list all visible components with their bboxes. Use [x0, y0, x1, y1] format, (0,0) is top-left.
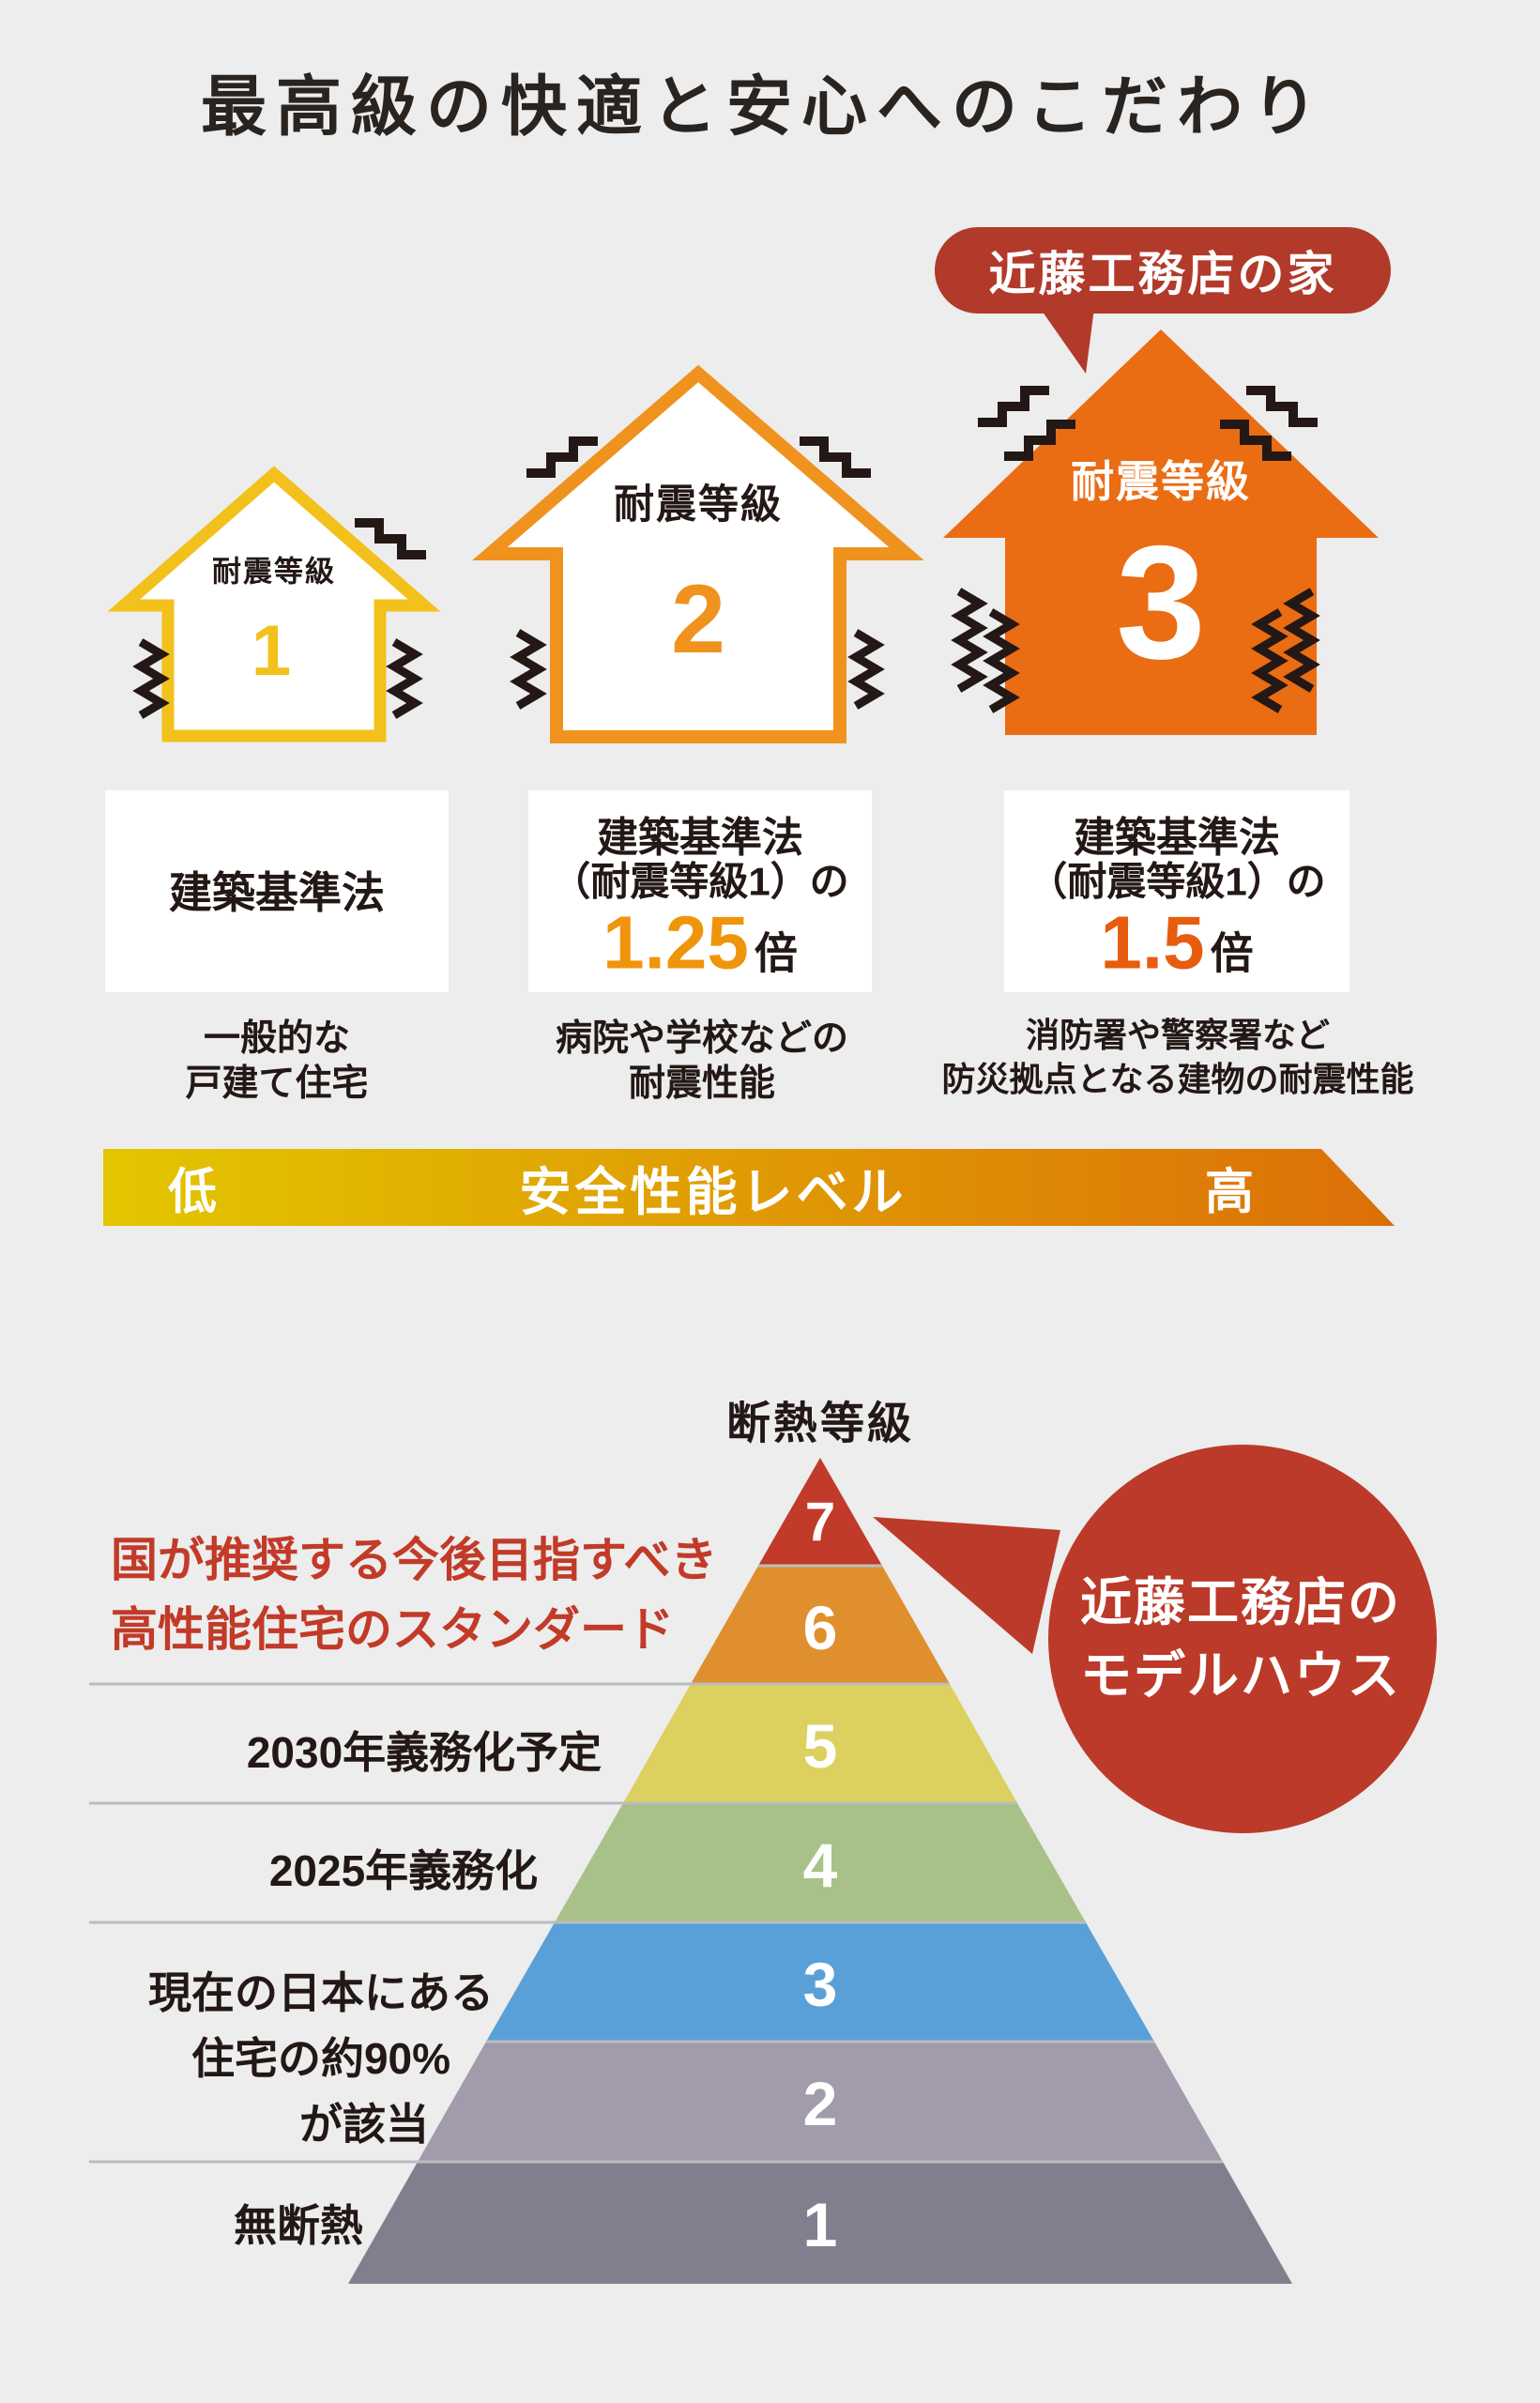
house-3-grade-title: 耐震等級: [1071, 448, 1251, 510]
shake-zigzag-icon: [856, 633, 877, 706]
spec-grade1-title: 建築基準法: [169, 859, 385, 921]
company-house-badge: 近藤工務店の家: [935, 227, 1391, 314]
house-3-grade-number: 3: [1116, 522, 1206, 683]
national-standard-note: 高性能住宅のスタンダード: [111, 1592, 674, 1660]
shake-stairs-icon: [978, 390, 1049, 422]
tier-number-7: 7: [805, 1495, 835, 1550]
shake-zigzag-icon: [141, 642, 161, 715]
spec-grade2-multiplier-unit: 倍: [755, 920, 798, 982]
house-3-caption: 消防署や警察署など: [1026, 1008, 1330, 1057]
house-3-caption: 防災拠点となる建物の耐震性能: [942, 1052, 1414, 1101]
model-house-callout: 近藤工務店の: [1080, 1560, 1401, 1635]
tier-number-6: 6: [803, 1597, 838, 1659]
insulation-title: 断熱等級: [726, 1387, 914, 1452]
badge-tail: [1040, 308, 1094, 374]
tier-number-1: 1: [803, 2194, 838, 2256]
shake-zigzag-icon: [959, 591, 980, 689]
spec-grade2-multiplier-row: 1.25 倍: [602, 906, 798, 982]
house-2-grade-title: 耐震等級: [614, 472, 783, 530]
spec-grade3-multiplier: 1.5: [1100, 906, 1204, 981]
house-1-grade-number: 1: [252, 616, 291, 687]
house-2-grade-number: 2: [671, 571, 725, 668]
house-1-shape: [124, 474, 424, 736]
spec-grade3-multiplier-unit: 倍: [1211, 920, 1254, 982]
shake-stairs-icon: [1246, 390, 1318, 422]
page-title: 最高級の快適と安心へのこだわり: [201, 54, 1327, 149]
tier-number-2: 2: [803, 2073, 838, 2135]
spec-grade3-subtitle: （耐震等級1）の: [1028, 850, 1325, 908]
tier-number-3: 3: [803, 1953, 838, 2015]
shake-zigzag-icon: [518, 633, 539, 706]
infographic-page: 最高級の快適と安心へのこだわり 近藤工務店の家 耐震等級 1 耐震等級 2 耐震…: [0, 0, 1540, 2403]
spec-grade3-multiplier-row: 1.5 倍: [1100, 906, 1253, 982]
model-house-callout: モデルハウス: [1080, 1633, 1401, 1708]
house-2-shape: [490, 374, 907, 737]
shake-zigzag-icon: [394, 642, 415, 715]
house-1-grade-title: 耐震等級: [212, 548, 336, 590]
national-standard-note: 国が推奨する今後目指すべき: [111, 1523, 718, 1590]
spec-grade2-subtitle: （耐震等級1）の: [551, 850, 848, 908]
house-2-caption: 耐震性能: [629, 1054, 775, 1107]
axis-high-label: 高: [1205, 1153, 1254, 1223]
house-1-caption: 戸建て住宅: [185, 1054, 368, 1107]
tier-number-4: 4: [803, 1834, 838, 1896]
row-label-no-insulation: 無断熱: [234, 2192, 363, 2254]
row-label-2030: 2030年義務化予定: [247, 1719, 602, 1781]
row-label-90pct: 住宅の約90%: [191, 2025, 450, 2087]
row-label-90pct: 現在の日本にある: [148, 1959, 494, 2021]
row-label-90pct: が該当: [299, 2090, 429, 2152]
row-label-2025: 2025年義務化: [269, 1837, 538, 1899]
tier-number-5: 5: [803, 1715, 838, 1777]
spec-grade2-multiplier: 1.25: [602, 906, 749, 981]
badge-label: 近藤工務店の家: [989, 237, 1337, 304]
axis-low-label: 低: [168, 1153, 217, 1223]
axis-title: 安全性能レベル: [519, 1150, 907, 1225]
